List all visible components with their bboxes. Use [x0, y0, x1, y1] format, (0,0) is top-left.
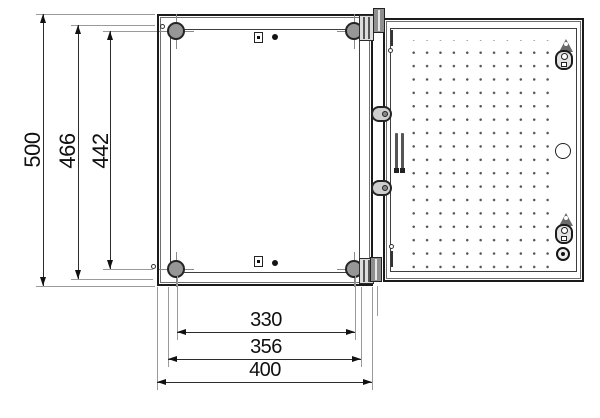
door-hole-mark-bottom: [272, 260, 278, 266]
arrowhead: [75, 270, 81, 279]
front-view-body: [157, 14, 373, 286]
plate-rod-right: [401, 133, 404, 169]
extension-line: [103, 269, 153, 270]
extension-line: [36, 14, 155, 15]
hinge-pin-bottom: [370, 257, 382, 282]
plate-rod-foot-right: [400, 168, 405, 173]
dimension-label-500: 500: [22, 120, 44, 180]
arrowhead: [352, 356, 361, 362]
hinge-pin-top: [373, 8, 385, 33]
dimension-label-466: 466: [57, 121, 79, 181]
extension-line: [71, 25, 155, 26]
arrowhead: [75, 25, 81, 34]
earth-stud-line-bottom: [391, 251, 393, 267]
earth-stud-line-top: [391, 30, 393, 46]
arrowhead: [363, 379, 372, 385]
arrowhead: [107, 31, 113, 40]
arrowhead: [168, 356, 177, 362]
dimension-line-330: [177, 332, 355, 333]
extension-line: [36, 286, 155, 287]
arrowhead: [107, 260, 113, 269]
corner-fixing-hole-top-left: [167, 22, 185, 40]
extension-line: [372, 287, 373, 390]
plate-rod-left: [395, 133, 398, 169]
extension-line: [168, 287, 169, 367]
extension-line: [157, 287, 158, 390]
dimension-line-400: [157, 382, 372, 383]
latch-pin-icon: [564, 42, 568, 46]
dimension-label-400: 400: [230, 359, 300, 381]
plate-rod-foot-left: [394, 168, 399, 173]
hinge-lower: [371, 180, 392, 196]
hinge-pin-line: [377, 286, 378, 316]
drawing-canvas: 500 466 442 330 356 400: [0, 0, 600, 418]
hinge-bracket-front-top: [359, 15, 374, 41]
latch-eye: [561, 227, 568, 234]
perforation-grid: [402, 40, 554, 269]
side-hole: [555, 143, 571, 159]
door-stop-mark-top: [254, 32, 263, 43]
latch-top: [555, 39, 577, 75]
arrowhead: [346, 329, 355, 335]
arrowhead: [177, 329, 186, 335]
extension-line: [71, 279, 153, 280]
extension-line: [361, 287, 362, 367]
extension-line: [355, 276, 356, 340]
arrowhead: [40, 277, 46, 286]
latch-pin-icon: [564, 216, 568, 220]
earth-stud-top: [388, 48, 393, 53]
pilot-hole-top-left: [160, 24, 165, 29]
dimension-label-330: 330: [231, 309, 301, 331]
dimension-label-442: 442: [90, 121, 112, 181]
latch-eye: [561, 53, 568, 60]
hinge-upper: [371, 106, 392, 122]
latch-slot: [561, 236, 567, 241]
lock-knob: [556, 247, 570, 261]
front-door-panel: [170, 29, 360, 273]
earth-stud-bottom: [389, 244, 394, 249]
latch-bottom: [555, 213, 577, 249]
arrowhead: [40, 14, 46, 23]
corner-fixing-hole-bottom-left: [167, 260, 185, 278]
dimension-label-356: 356: [231, 336, 301, 358]
door-hole-mark-top: [272, 34, 278, 40]
latch-slot: [561, 62, 567, 67]
door-stop-mark-bottom: [254, 256, 263, 267]
arrowhead: [157, 379, 166, 385]
